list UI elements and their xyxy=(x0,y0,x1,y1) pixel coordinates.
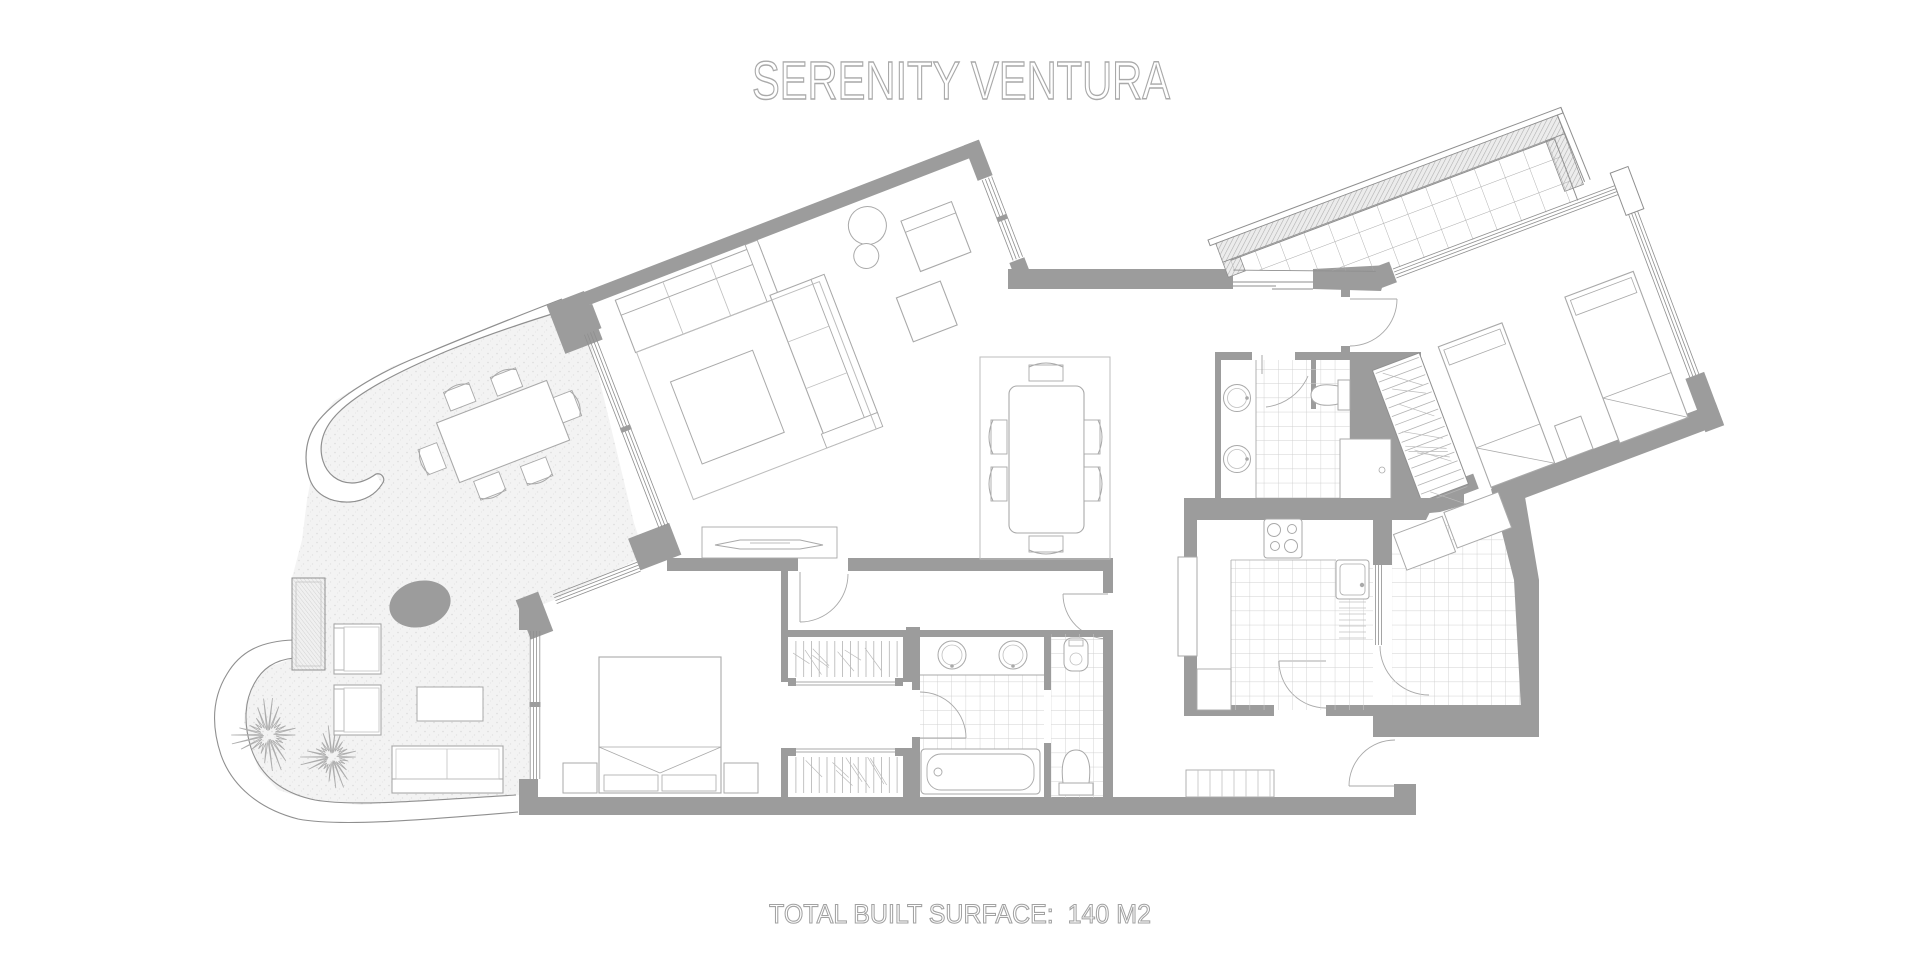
svg-text:SERENITY VENTURA: SERENITY VENTURA xyxy=(752,51,1170,111)
svg-text:TOTAL BUILT SURFACE: 140 M2: TOTAL BUILT SURFACE: 140 M2 xyxy=(769,899,1151,929)
